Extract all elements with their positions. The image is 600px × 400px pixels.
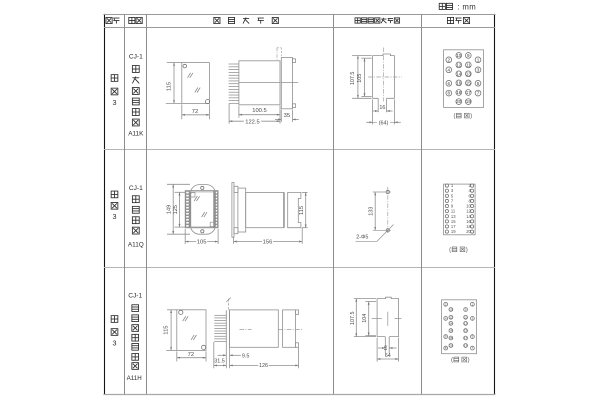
svg-text:10: 10 xyxy=(449,308,453,312)
svg-text:(: ( xyxy=(453,113,455,120)
svg-text:): ) xyxy=(466,246,468,253)
svg-text:16: 16 xyxy=(449,329,453,333)
svg-text:12: 12 xyxy=(449,315,453,319)
svg-text:100.5: 100.5 xyxy=(252,108,267,114)
svg-text:19: 19 xyxy=(464,344,468,348)
svg-text:20: 20 xyxy=(466,229,471,234)
svg-text:115: 115 xyxy=(299,206,305,215)
svg-text:(64): (64) xyxy=(379,120,389,126)
svg-text:5: 5 xyxy=(477,81,480,86)
svg-text:15: 15 xyxy=(466,81,472,86)
svg-text:9: 9 xyxy=(467,53,470,58)
svg-text:CJ-1: CJ-1 xyxy=(128,293,142,300)
svg-text:16: 16 xyxy=(383,345,388,351)
svg-text:10: 10 xyxy=(456,53,462,58)
svg-text:156: 156 xyxy=(263,239,273,245)
svg-text:104: 104 xyxy=(362,314,368,323)
svg-text:149: 149 xyxy=(167,205,173,214)
svg-text:107.5: 107.5 xyxy=(350,72,356,86)
svg-text:A11K: A11K xyxy=(128,131,144,138)
svg-text:11: 11 xyxy=(464,315,467,319)
svg-text:): ) xyxy=(470,113,472,120)
svg-text:125: 125 xyxy=(173,205,179,214)
svg-text:: mm: : mm xyxy=(458,3,477,12)
svg-text:105: 105 xyxy=(197,240,207,246)
svg-text:2-Φ5: 2-Φ5 xyxy=(356,235,368,241)
svg-text:126: 126 xyxy=(259,363,268,369)
svg-text:7: 7 xyxy=(477,91,480,96)
svg-text:105: 105 xyxy=(357,74,363,83)
svg-text:8: 8 xyxy=(448,91,451,96)
svg-text:11: 11 xyxy=(466,63,471,68)
svg-text:CJ-1: CJ-1 xyxy=(129,53,143,60)
svg-text:35: 35 xyxy=(284,113,290,119)
svg-text:14: 14 xyxy=(456,71,462,76)
svg-text:115: 115 xyxy=(164,325,170,334)
svg-text:16: 16 xyxy=(379,105,385,111)
svg-text:13: 13 xyxy=(464,322,468,326)
svg-text:3: 3 xyxy=(113,212,117,221)
svg-text:72: 72 xyxy=(192,109,198,115)
svg-text:6: 6 xyxy=(448,81,451,86)
svg-text:72: 72 xyxy=(188,352,194,358)
svg-text:A11H: A11H xyxy=(127,375,142,382)
svg-text:64: 64 xyxy=(385,353,391,359)
svg-text:19: 19 xyxy=(466,99,472,104)
svg-text:18: 18 xyxy=(449,336,453,340)
svg-text:115: 115 xyxy=(166,82,172,91)
svg-text:20: 20 xyxy=(456,99,462,104)
svg-text:20: 20 xyxy=(449,344,453,348)
svg-text:A11Q: A11Q xyxy=(128,241,144,248)
svg-text:17: 17 xyxy=(464,336,468,340)
svg-text:(: ( xyxy=(449,246,451,253)
svg-text:19: 19 xyxy=(451,229,456,234)
svg-text:): ) xyxy=(468,357,470,364)
svg-text:16: 16 xyxy=(456,81,462,86)
svg-text:3: 3 xyxy=(477,67,480,72)
svg-text:17: 17 xyxy=(466,90,472,95)
svg-text:2: 2 xyxy=(448,57,451,62)
svg-text:15: 15 xyxy=(464,329,468,333)
svg-text:18: 18 xyxy=(456,90,462,95)
svg-text:107.5: 107.5 xyxy=(350,311,356,325)
svg-text:31.5: 31.5 xyxy=(214,359,225,365)
svg-text:4: 4 xyxy=(448,67,451,72)
svg-text:122.5: 122.5 xyxy=(245,119,260,125)
svg-text:13: 13 xyxy=(466,71,472,76)
svg-text:3: 3 xyxy=(113,98,117,107)
svg-text:14: 14 xyxy=(449,322,453,326)
svg-text:133: 133 xyxy=(369,207,375,216)
svg-text:1: 1 xyxy=(477,57,480,62)
svg-text:9.5: 9.5 xyxy=(242,353,250,359)
svg-text:CJ-1: CJ-1 xyxy=(129,185,143,192)
svg-text:12: 12 xyxy=(456,63,462,68)
svg-text:3: 3 xyxy=(113,338,117,347)
